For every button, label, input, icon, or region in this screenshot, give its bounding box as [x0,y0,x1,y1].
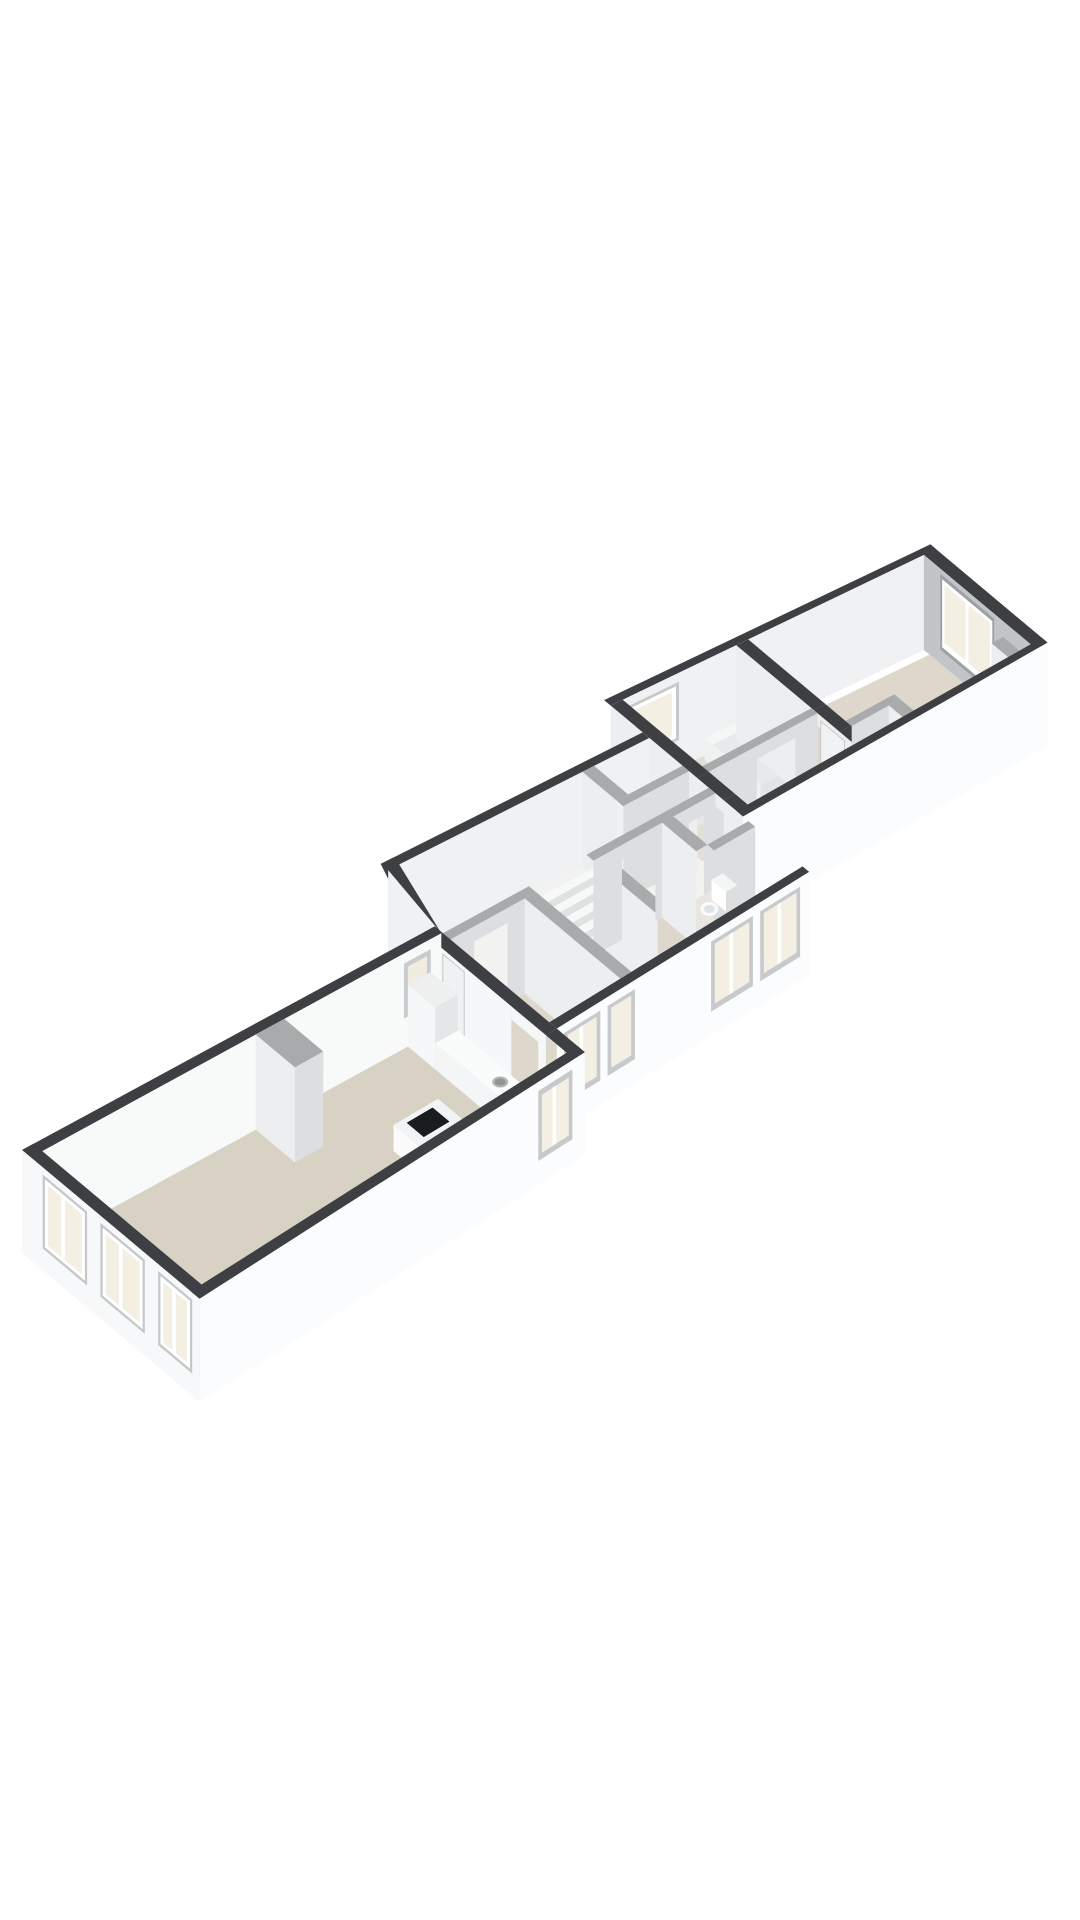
sw-window3-mullion [172,1290,176,1353]
room-a-window2-glass [611,995,631,1067]
kitchen-sink-inner [495,1079,506,1086]
sw-window1-mullion [61,1197,65,1260]
bedroom-b-window1-mullion [729,932,733,994]
toilet-bowl-inner [704,905,715,913]
sw-window2-mullion [119,1245,123,1308]
floorplan-canvas [0,0,1080,1920]
hall-wall-face-3 [593,845,622,956]
se-window-mullion [553,1086,557,1146]
chimney-face-se [295,1052,323,1163]
floorplan-3d-view [0,0,1080,1920]
bedroom-b-window2-mullion [777,902,781,964]
